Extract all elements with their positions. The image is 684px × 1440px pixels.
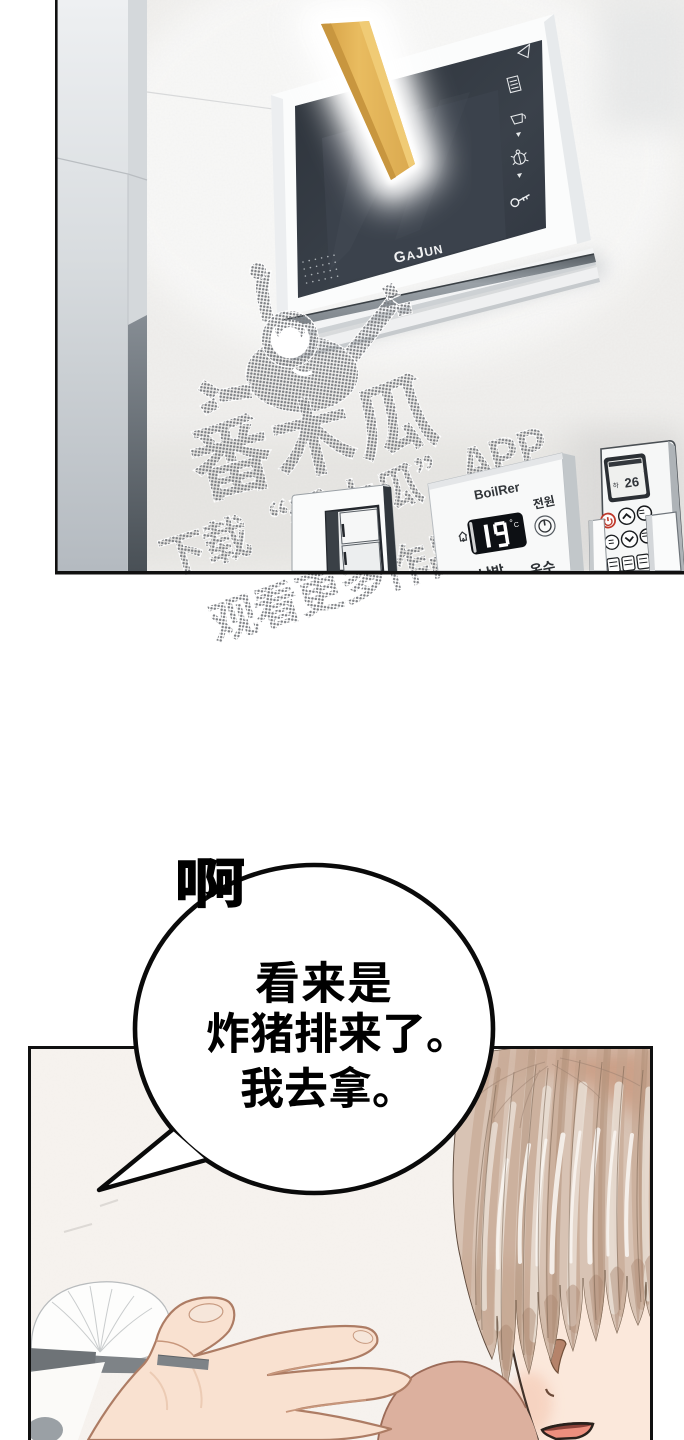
svg-text:26: 26 — [624, 474, 640, 491]
svg-text:C: C — [514, 521, 520, 529]
